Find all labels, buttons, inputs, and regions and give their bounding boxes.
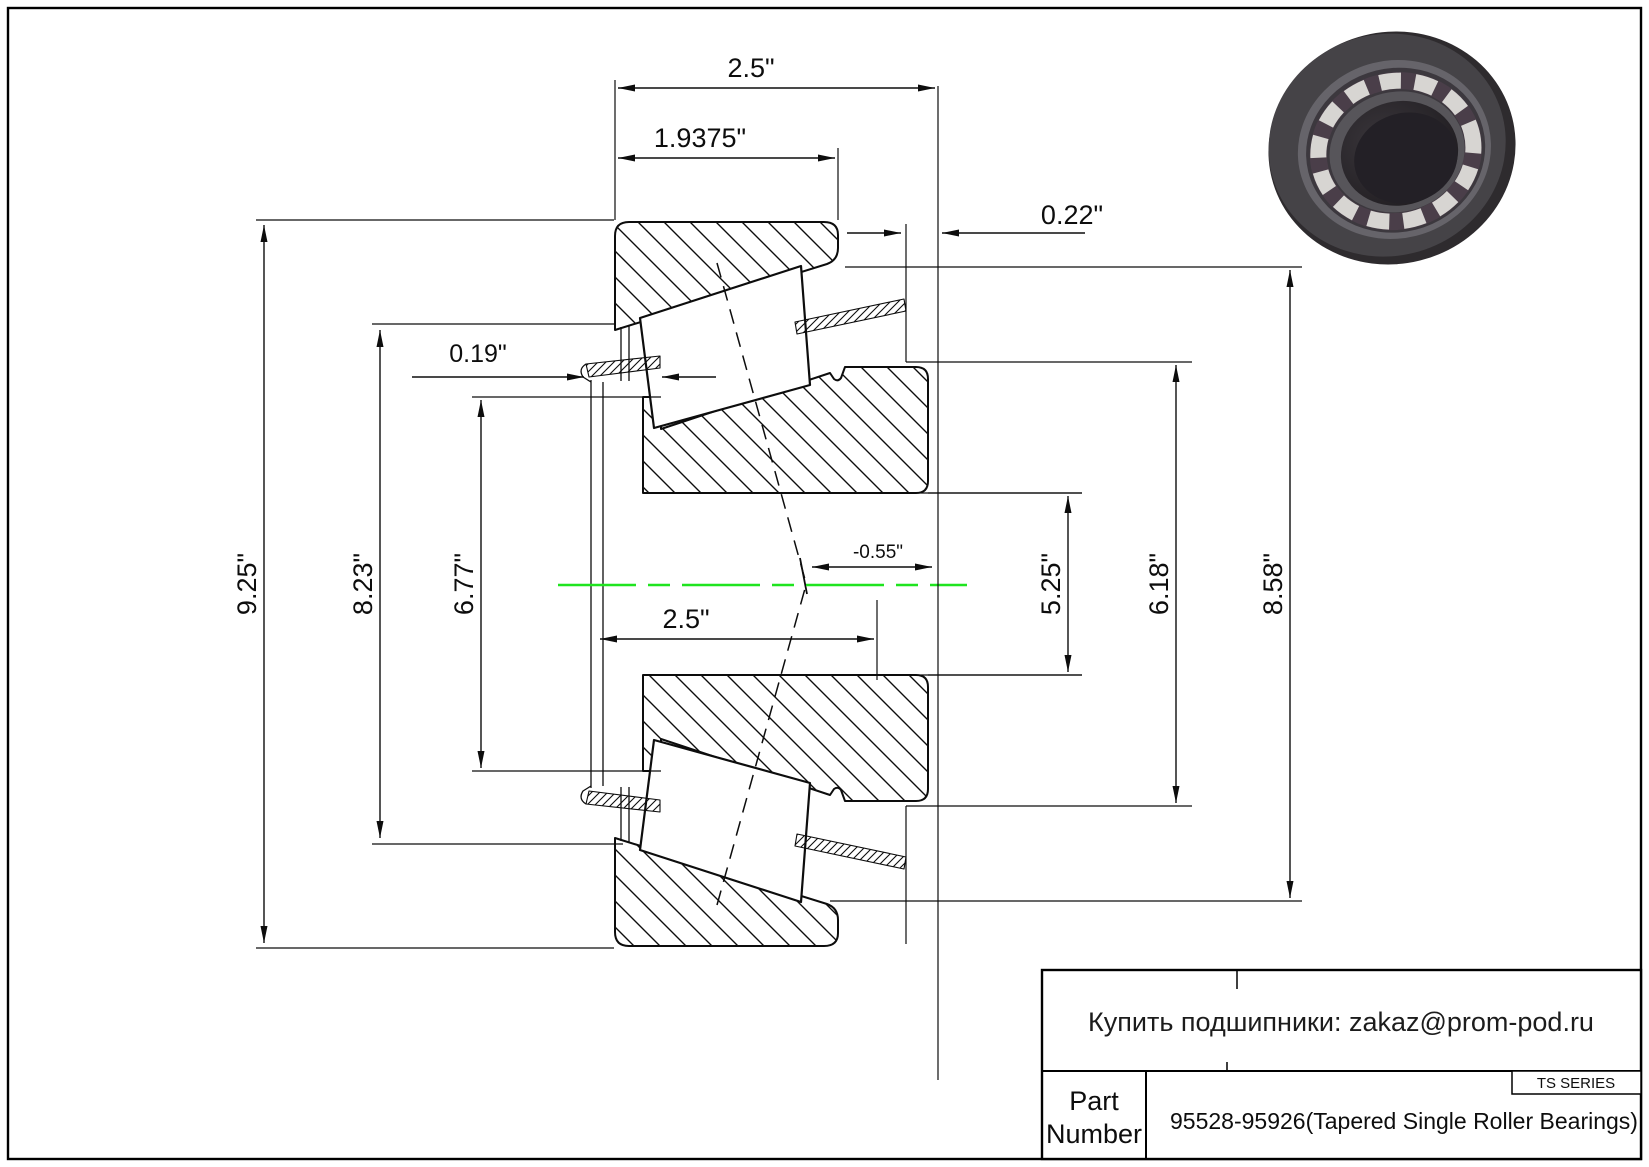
part-label-line2: Number	[1046, 1119, 1142, 1149]
part-number-text: 95528-95926(Tapered Single Roller Bearin…	[1170, 1108, 1638, 1134]
dim-effective-center: -0.55"	[853, 542, 903, 563]
dim-outer-diameter: 9.25"	[232, 553, 262, 615]
series-label: TS SERIES	[1537, 1075, 1615, 1092]
dim-8-58: 8.58"	[1258, 553, 1288, 615]
bearing-3d-image	[1244, 5, 1541, 290]
bearing-cross-section-drawing: 2.5" 1.9375" 0.22" 0.19" 2.5" -0.55" 9.2…	[0, 0, 1649, 1167]
contact-text: Купить подшипники: zakaz@prom-pod.ru	[1088, 1007, 1594, 1037]
dim-6-77: 6.77"	[449, 553, 479, 615]
dim-bore-width: 2.5"	[662, 604, 709, 634]
effective-center-tick	[800, 558, 807, 594]
part-label-line1: Part	[1069, 1086, 1119, 1116]
dim-8-23: 8.23"	[348, 553, 378, 615]
dim-cup-width: 1.9375"	[654, 123, 746, 153]
dim-6-18: 6.18"	[1144, 553, 1174, 615]
dim-bore-diameter: 5.25"	[1036, 553, 1066, 615]
title-block: Купить подшипники: zakaz@prom-pod.ru TS …	[1042, 970, 1641, 1159]
dim-cone-standout: 0.22"	[1041, 200, 1103, 230]
dim-cage-lip: 0.19"	[449, 340, 507, 368]
dim-overall-width: 2.5"	[727, 53, 774, 83]
drawing-sheet: 2.5" 1.9375" 0.22" 0.19" 2.5" -0.55" 9.2…	[0, 0, 1649, 1167]
